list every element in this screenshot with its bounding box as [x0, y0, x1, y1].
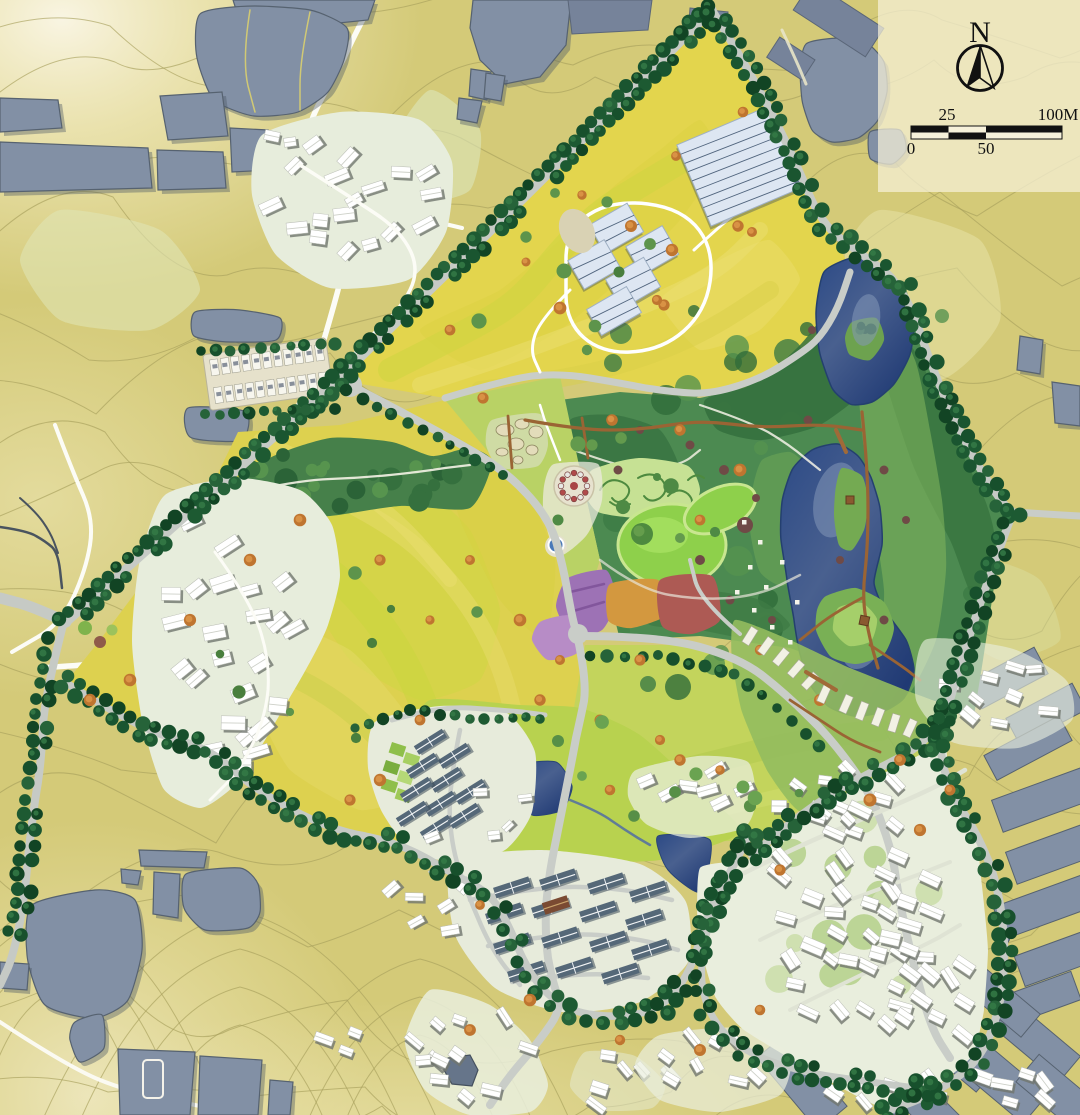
svg-text:0: 0: [907, 139, 916, 158]
svg-text:25: 25: [939, 105, 956, 124]
svg-text:100M: 100M: [1038, 105, 1079, 124]
svg-text:N: N: [969, 16, 991, 49]
svg-text:50: 50: [978, 139, 995, 158]
